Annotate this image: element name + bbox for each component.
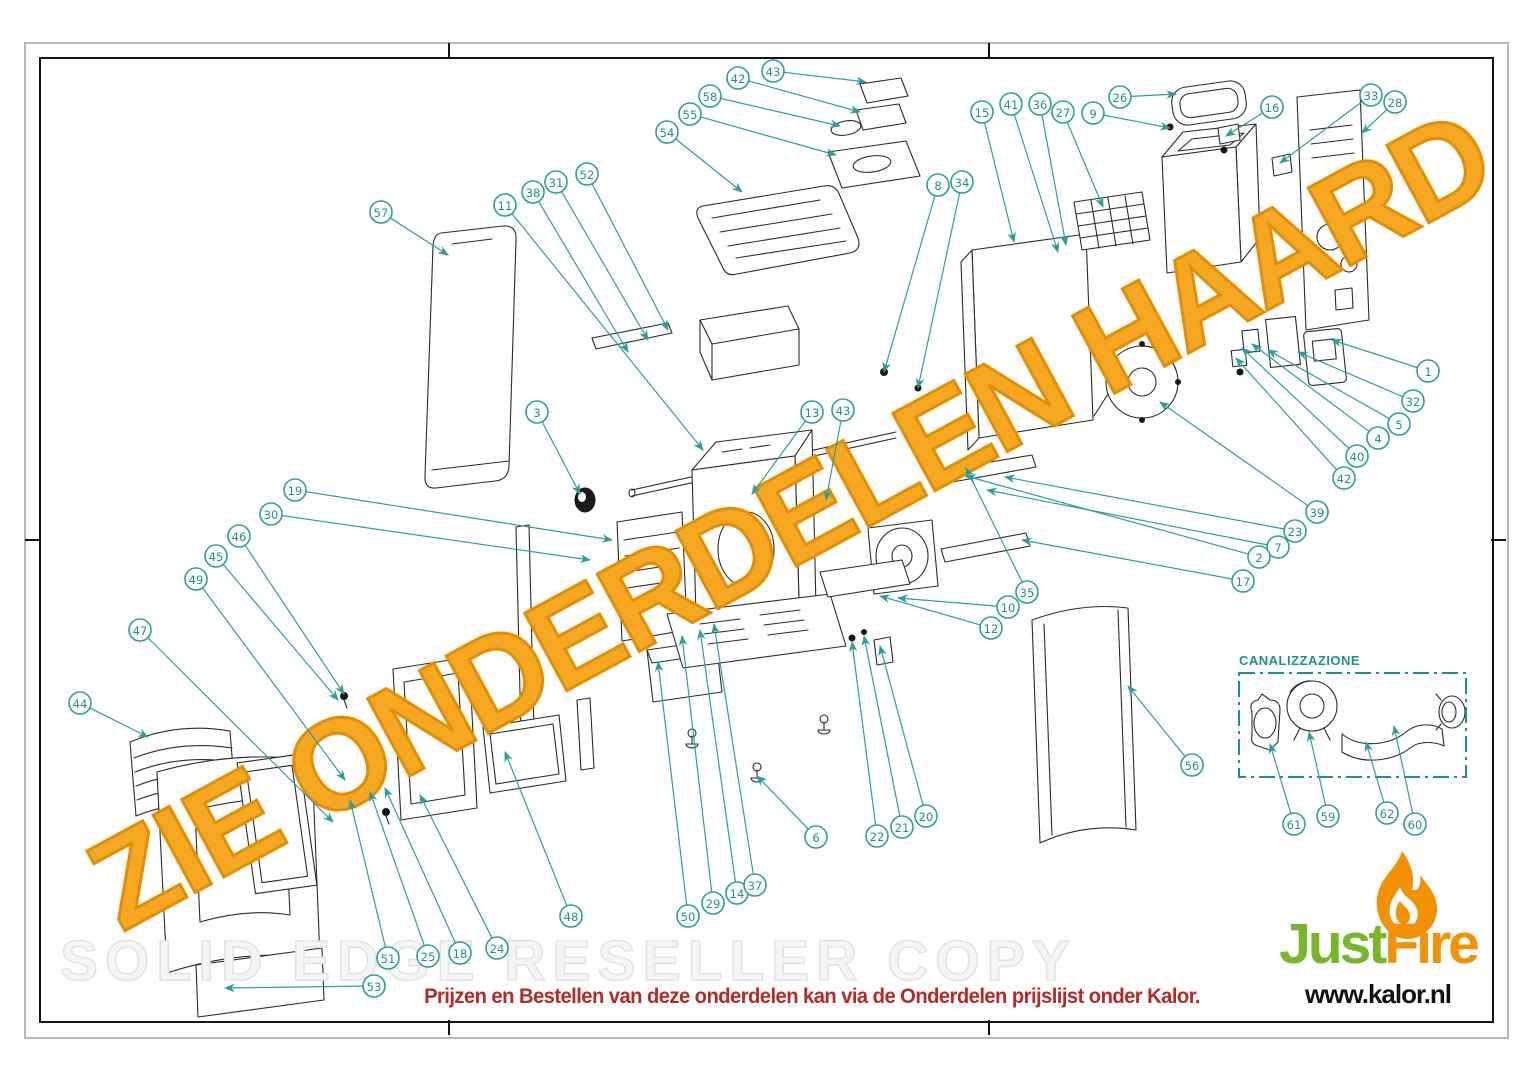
callout-38: 38 (522, 181, 628, 352)
callout-4: 4 (1252, 344, 1389, 449)
callout-60: 60 (1394, 726, 1426, 835)
svg-text:20: 20 (919, 810, 934, 824)
svg-text:23: 23 (1288, 525, 1303, 539)
callout-47: 47 (129, 619, 333, 822)
exploded-parts-drawing-page: SOLID EDGE RESELLER COPY ZIE ONDERDELEN … (0, 0, 1531, 1085)
svg-text:54: 54 (660, 126, 675, 140)
callout-46: 46 (228, 525, 344, 694)
svg-text:62: 62 (1380, 807, 1395, 821)
svg-text:3: 3 (533, 406, 540, 420)
callout-8: 8 (884, 174, 949, 372)
svg-text:43: 43 (766, 65, 781, 79)
svg-text:46: 46 (232, 530, 247, 544)
svg-text:7: 7 (1274, 541, 1281, 555)
callout-48: 48 (505, 752, 582, 927)
svg-text:15: 15 (975, 106, 990, 120)
svg-text:45: 45 (209, 550, 224, 564)
svg-text:24: 24 (490, 942, 505, 956)
svg-text:50: 50 (681, 910, 696, 924)
svg-text:21: 21 (895, 821, 910, 835)
svg-text:11: 11 (498, 199, 513, 213)
logo-website: www.kalor.nl (1256, 979, 1500, 1010)
svg-text:12: 12 (984, 622, 999, 636)
callout-34: 34 (918, 171, 973, 388)
callout-39: 39 (1160, 402, 1328, 523)
callout-14: 14 (700, 630, 748, 904)
callout-41: 41 (1000, 93, 1058, 252)
callout-26: 26 (1109, 86, 1176, 108)
svg-text:29: 29 (706, 897, 721, 911)
svg-text:39: 39 (1310, 506, 1325, 520)
svg-text:51: 51 (381, 952, 396, 966)
callout-35: 35 (966, 468, 1038, 603)
svg-text:61: 61 (1287, 818, 1302, 832)
svg-text:41: 41 (1004, 98, 1019, 112)
callout-37: 37 (714, 624, 766, 896)
callout-24: 24 (420, 795, 508, 959)
callout-54: 54 (656, 121, 742, 192)
svg-text:25: 25 (421, 950, 436, 964)
svg-text:52: 52 (580, 168, 595, 182)
callout-15: 15 (971, 101, 1014, 242)
callout-2: 2 (966, 476, 1270, 568)
logo-word-just: Just (1279, 912, 1384, 976)
svg-text:36: 36 (1033, 98, 1048, 112)
svg-text:19: 19 (288, 484, 303, 498)
callout-43: 43 (826, 399, 854, 500)
svg-text:2: 2 (1255, 551, 1262, 565)
callout-23: 23 (1005, 477, 1306, 542)
svg-text:38: 38 (526, 186, 541, 200)
callout-13: 13 (752, 401, 823, 494)
callout-22: 22 (852, 642, 888, 847)
svg-text:56: 56 (1185, 759, 1200, 773)
callout-44: 44 (69, 692, 148, 737)
svg-text:32: 32 (1406, 395, 1421, 409)
svg-text:34: 34 (955, 176, 970, 190)
svg-text:22: 22 (870, 830, 885, 844)
svg-text:9: 9 (1089, 107, 1096, 121)
callout-29: 29 (682, 636, 724, 914)
svg-text:42: 42 (731, 72, 746, 86)
callout-40: 40 (1242, 348, 1368, 467)
callout-62: 62 (1366, 742, 1398, 824)
svg-text:26: 26 (1113, 91, 1128, 105)
svg-text:35: 35 (1020, 586, 1035, 600)
callout-58: 58 (699, 85, 840, 126)
callout-61: 61 (1270, 744, 1305, 835)
callout-43: 43 (762, 60, 866, 82)
svg-text:49: 49 (189, 573, 204, 587)
svg-text:59: 59 (1321, 810, 1336, 824)
callout-6: 6 (757, 776, 827, 848)
callout-59: 59 (1309, 732, 1339, 827)
callout-56: 56 (1128, 686, 1203, 776)
callout-1: 1 (1332, 340, 1439, 382)
logo-wordmark: JustFire (1256, 911, 1500, 977)
callout-20: 20 (880, 646, 937, 827)
callout-49: 49 (185, 568, 345, 780)
svg-text:27: 27 (1056, 106, 1071, 120)
svg-text:60: 60 (1408, 818, 1423, 832)
callout-51: 51 (350, 800, 399, 969)
callout-53: 53 (225, 975, 385, 997)
callout-31: 31 (545, 171, 648, 340)
callout-33: 33 (1280, 84, 1382, 163)
callout-16: 16 (1226, 96, 1283, 136)
callout-12: 12 (880, 596, 1002, 639)
callout-42: 42 (1236, 358, 1355, 489)
svg-text:53: 53 (367, 980, 382, 994)
footer-note: Prijzen en Bestellen van deze onderdelen… (424, 984, 1200, 1009)
svg-text:31: 31 (549, 176, 564, 190)
svg-text:40: 40 (1350, 450, 1365, 464)
canalizzazione-label: CANALIZZAZIONE (1239, 653, 1360, 668)
svg-text:8: 8 (934, 179, 941, 193)
svg-text:33: 33 (1364, 89, 1379, 103)
svg-text:57: 57 (374, 206, 389, 220)
svg-text:4: 4 (1374, 432, 1381, 446)
svg-text:10: 10 (1001, 601, 1016, 615)
svg-text:17: 17 (1236, 575, 1251, 589)
svg-text:55: 55 (683, 108, 698, 122)
svg-text:28: 28 (1388, 96, 1403, 110)
svg-text:6: 6 (812, 831, 819, 845)
svg-text:58: 58 (703, 90, 718, 104)
svg-text:14: 14 (730, 887, 745, 901)
callout-50: 50 (658, 662, 699, 927)
svg-text:48: 48 (564, 910, 579, 924)
callout-19: 19 (284, 479, 612, 540)
callout-3: 3 (526, 401, 580, 494)
callout-55: 55 (679, 103, 836, 155)
svg-text:44: 44 (73, 697, 88, 711)
svg-text:18: 18 (453, 947, 468, 961)
callout-25: 25 (370, 792, 439, 967)
svg-text:47: 47 (133, 624, 148, 638)
callout-18: 18 (385, 788, 471, 964)
svg-text:43: 43 (836, 404, 851, 418)
callout-17: 17 (1022, 540, 1254, 592)
svg-text:37: 37 (748, 879, 763, 893)
logo-word-fire: Fire (1384, 912, 1477, 976)
callout-45: 45 (205, 545, 338, 700)
svg-text:42: 42 (1337, 472, 1352, 486)
callout-52: 52 (576, 163, 668, 330)
callout-21: 21 (864, 636, 913, 838)
callout-30: 30 (260, 503, 590, 560)
svg-text:13: 13 (805, 406, 820, 420)
svg-text:30: 30 (264, 508, 279, 522)
callout-57: 57 (370, 201, 448, 255)
justfire-logo: JustFire www.kalor.nl (1256, 845, 1500, 1020)
svg-text:1: 1 (1424, 365, 1431, 379)
svg-text:5: 5 (1395, 418, 1402, 432)
svg-text:16: 16 (1265, 101, 1280, 115)
